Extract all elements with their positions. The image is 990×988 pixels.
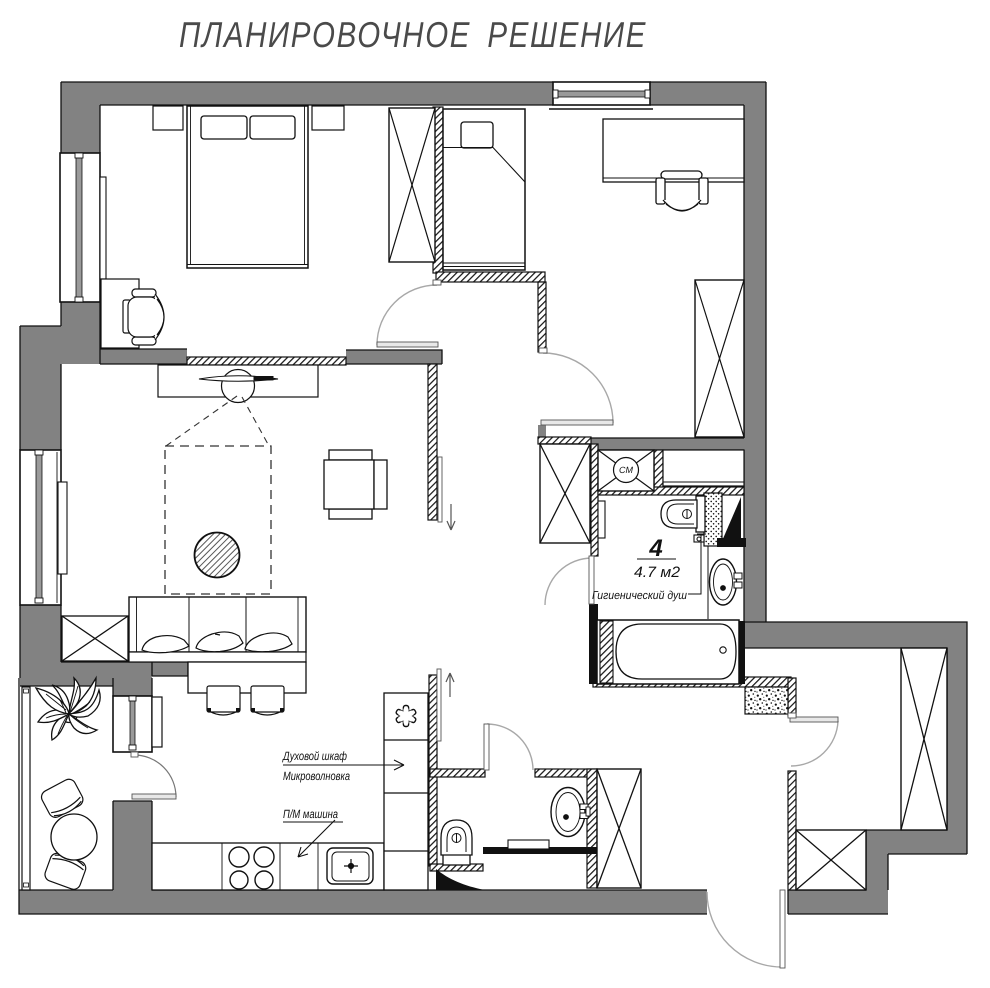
svg-text:СМ: СМ: [619, 465, 633, 475]
svg-text:Духовой шкаф: Духовой шкаф: [281, 749, 347, 763]
svg-text:4: 4: [648, 535, 662, 562]
svg-text:Микроволновка: Микроволновка: [283, 769, 350, 783]
svg-text:П/М машина: П/М машина: [283, 807, 338, 821]
svg-text:ПЛАНИРОВОЧНОЕ РЕШЕНИЕ: ПЛАНИРОВОЧНОЕ РЕШЕНИЕ: [179, 14, 647, 55]
svg-text:4.7 м2: 4.7 м2: [634, 564, 681, 581]
svg-text:Гигиенический душ: Гигиенический душ: [592, 590, 687, 602]
